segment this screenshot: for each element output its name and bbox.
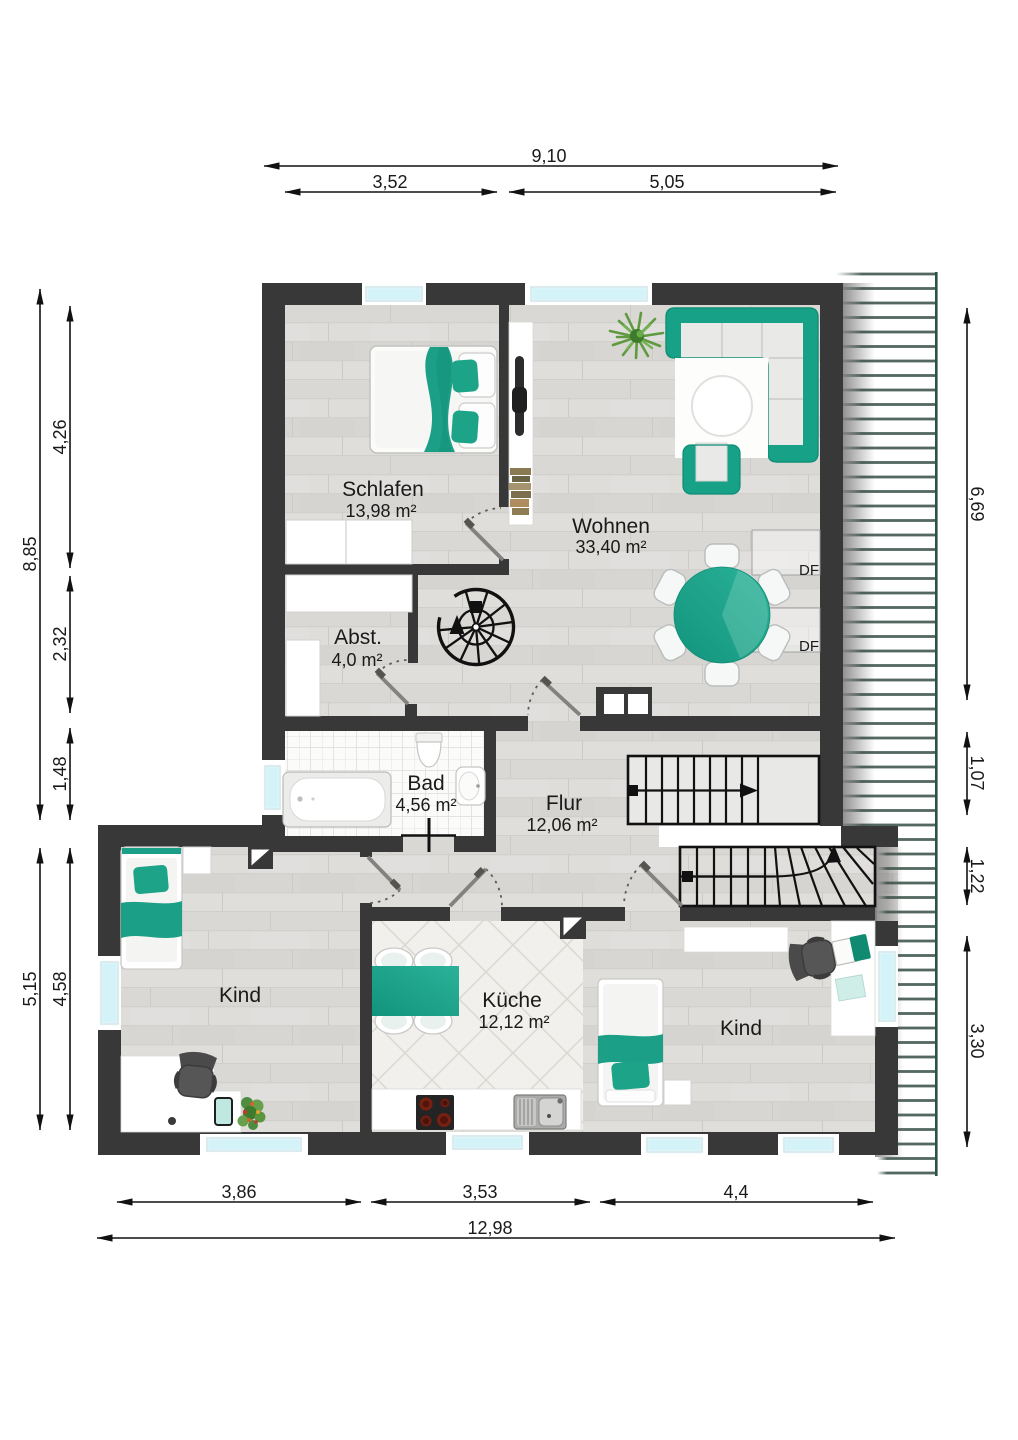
svg-text:3,53: 3,53 [462,1182,497,1202]
svg-text:Bad: Bad [407,772,444,795]
svg-text:3,52: 3,52 [372,172,407,192]
svg-text:2,32: 2,32 [50,626,70,661]
svg-text:Küche: Küche [482,989,542,1012]
svg-text:9,10: 9,10 [531,146,566,166]
svg-text:4,58: 4,58 [50,971,70,1006]
svg-text:Abst.: Abst. [334,626,382,649]
svg-text:Flur: Flur [546,792,582,815]
svg-text:3,30: 3,30 [967,1023,987,1058]
svg-text:Kind: Kind [219,984,261,1007]
svg-text:6,69: 6,69 [967,486,987,521]
svg-text:5,05: 5,05 [649,172,684,192]
svg-text:4,0 m²: 4,0 m² [331,650,382,670]
svg-text:13,98 m²: 13,98 m² [345,501,416,521]
svg-text:4,4: 4,4 [723,1182,748,1202]
svg-text:Wohnen: Wohnen [572,515,650,538]
svg-text:1,07: 1,07 [967,755,987,790]
svg-text:DF: DF [799,562,819,579]
svg-text:DF: DF [799,638,819,655]
svg-text:33,40 m²: 33,40 m² [575,537,646,557]
svg-text:8,85: 8,85 [20,536,40,571]
svg-text:12,98: 12,98 [467,1218,512,1238]
svg-text:1,22: 1,22 [967,858,987,893]
svg-text:Schlafen: Schlafen [342,478,424,501]
svg-text:4,26: 4,26 [50,419,70,454]
svg-text:1,48: 1,48 [50,756,70,791]
svg-text:4,56 m²: 4,56 m² [395,795,456,815]
svg-text:12,12 m²: 12,12 m² [478,1012,549,1032]
svg-text:Kind: Kind [720,1017,762,1040]
svg-text:3,86: 3,86 [221,1182,256,1202]
svg-text:12,06 m²: 12,06 m² [526,815,597,835]
svg-text:5,15: 5,15 [20,971,40,1006]
